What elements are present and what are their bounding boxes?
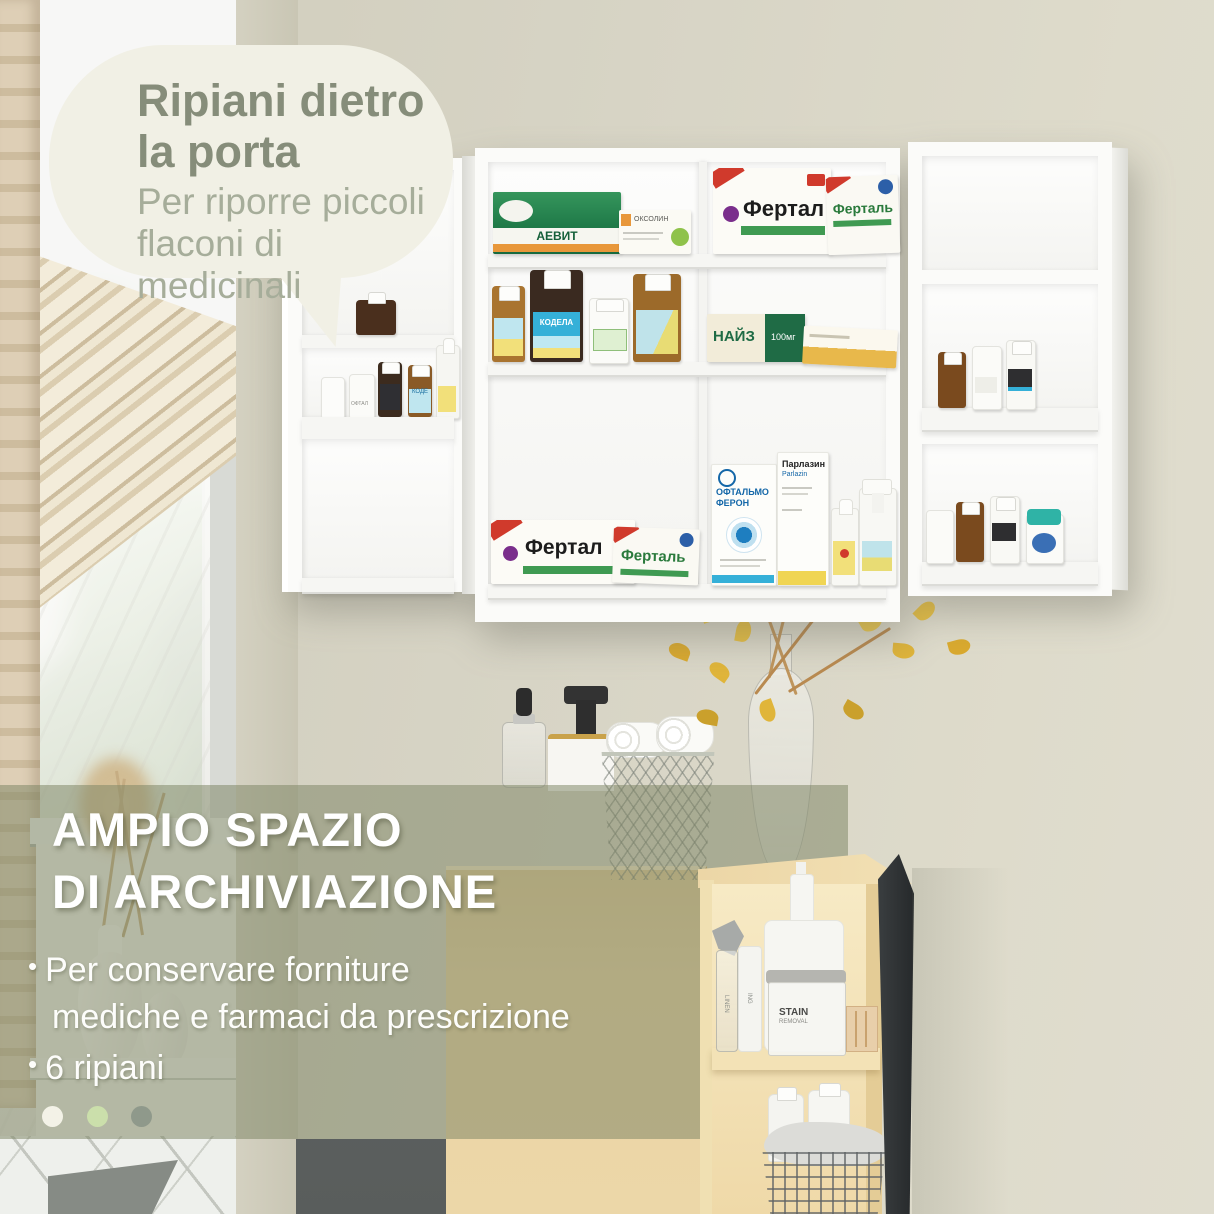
door-shelf-section — [922, 156, 1098, 270]
bullet-text: mediche e farmaci da prescrizione — [52, 998, 570, 1036]
parlazin-label-ru: Парлазин — [782, 459, 825, 469]
small-medicine-bottle — [956, 502, 984, 562]
cabinet-shelf — [488, 584, 886, 600]
yellow-box — [802, 326, 898, 369]
oftalmo-label: ОФТАЛЬМО — [716, 487, 769, 497]
fertal-label: Фертал — [525, 536, 602, 560]
nise-dose-label: 100мг — [771, 332, 796, 342]
nise-box: НАЙЗ 100мг — [707, 314, 805, 362]
cabinet-center: АЕВИТ ОКСОЛИН Фертал Ферталь — [475, 148, 900, 622]
door-shelf — [302, 417, 454, 441]
oxolin-box: ОКСОЛИН — [619, 210, 691, 254]
nasal-spray — [831, 508, 859, 586]
parlazin-label-en: Parlazin — [782, 471, 807, 478]
small-medicine-bottle — [378, 362, 402, 417]
small-medicine-bottle — [926, 510, 954, 564]
nise-label: НАЙЗ — [713, 328, 755, 345]
aevit-box: АЕВИТ — [493, 192, 621, 254]
laundry-wire-basket — [760, 1152, 888, 1214]
fertal2-box: Ферталь — [826, 175, 901, 255]
aevit-label: АЕВИТ — [493, 228, 621, 244]
door-shelf — [302, 578, 454, 594]
bottle-label: КОДЕ — [409, 389, 431, 413]
branch-leaf — [840, 699, 867, 723]
fertal2-box-bottom: Ферталь — [612, 527, 700, 586]
bullet-item: •6 ripiani — [28, 1041, 570, 1092]
door-shelf — [922, 562, 1098, 586]
white-jar — [589, 298, 629, 364]
carousel-dot-1[interactable] — [42, 1106, 63, 1127]
small-medicine-bottle — [990, 496, 1020, 564]
small-medicine-bottle — [972, 346, 1002, 410]
oftalmo-label2: ФЕРОН — [716, 498, 749, 508]
door-depth-edge — [1112, 148, 1128, 591]
product-marketing-image: ОФТАЛ КОДЕ АЕВИТ ОКСОЛИН — [0, 0, 1214, 1214]
linen-label: LINEN — [723, 995, 729, 1013]
small-medicine-bottle — [938, 352, 966, 408]
bubble-title-line1: Ripiani dietro — [137, 75, 425, 126]
fertal2-label: Ферталь — [832, 199, 893, 217]
parlazin-box: Парлазин Parlazin — [777, 452, 829, 586]
overlay-title-line1: AMPIO SPAZIO — [52, 799, 497, 861]
stain-label2: REMOVAL — [779, 1019, 808, 1025]
pump-bottle — [859, 488, 897, 586]
dropper-bottle — [502, 722, 546, 788]
bubble-body: Per riporre piccoli flaconi di medicinal… — [137, 181, 453, 307]
stain-label1: STAIN — [779, 1007, 808, 1018]
ing-spray-bottle: ING — [738, 946, 762, 1052]
bullet-text: Per conservare forniture — [45, 951, 410, 989]
syrup-bottle — [492, 286, 525, 362]
small-medicine-bottle: КОДЕ — [408, 365, 432, 417]
carousel-dot-3[interactable] — [131, 1106, 152, 1127]
syrup-bottle — [633, 274, 681, 362]
wall-shadow — [912, 868, 1042, 1214]
ointment-jar — [1026, 514, 1064, 564]
small-medicine-bottle — [321, 377, 345, 419]
speech-bubble: Ripiani dietro la porta Per riporre picc… — [49, 45, 453, 278]
fertal-label: Фертал — [743, 196, 824, 222]
door-shelf — [922, 408, 1098, 432]
small-medicine-bottle: ОФТАЛ — [349, 374, 375, 419]
fertal2-label: Ферталь — [621, 547, 686, 566]
oftalmo-feron-box: ОФТАЛЬМО ФЕРОН — [711, 464, 777, 586]
branch-leaf — [947, 637, 972, 657]
branch-leaf — [734, 619, 753, 643]
carousel-dot-2[interactable] — [87, 1106, 108, 1127]
branch-stem — [788, 627, 891, 693]
dropper-bulb — [516, 688, 532, 716]
bubble-title: Ripiani dietro la porta — [137, 75, 425, 177]
bullet-item: •Per conservare forniture — [28, 943, 570, 994]
bubble-body-line1: Per riporre piccoli — [137, 181, 453, 223]
small-medicine-bottle — [1006, 340, 1036, 410]
dark-furniture — [296, 1139, 452, 1214]
bottle-label: ОФТАЛ — [351, 401, 368, 407]
jug-pump — [790, 874, 814, 926]
cabinet-right-door[interactable] — [908, 142, 1112, 596]
bullet-dot: • — [28, 951, 37, 981]
nasal-spray-bottle — [436, 345, 460, 419]
branch-leaf — [892, 643, 915, 660]
branch-leaf — [706, 659, 733, 684]
overlay-bullets: •Per conservare forniture mediche e farm… — [28, 943, 570, 1092]
kodelak-bottle: КОДЕЛА — [530, 270, 583, 362]
stain-removal-jar: STAIN REMOVAL — [768, 982, 846, 1056]
door-hinge-gap — [462, 156, 475, 594]
door-shelf-section — [302, 439, 454, 578]
soap-pump-stem — [576, 700, 596, 738]
bullet-dot: • — [28, 1049, 37, 1079]
fertal-box: Фертал — [713, 168, 831, 254]
cabinet-shelf — [488, 254, 886, 269]
overlay-title-line2: DI ARCHIVIAZIONE — [52, 861, 497, 923]
ing-label: ING — [746, 993, 752, 1004]
bullet-text: 6 ripiani — [45, 1049, 164, 1087]
linen-spray-bottle: LINEN — [716, 950, 738, 1052]
kodelak-label: КОДЕЛА — [533, 312, 580, 358]
wooden-clips — [846, 1006, 878, 1052]
branch-leaf — [667, 640, 693, 662]
overlay-title: AMPIO SPAZIO DI ARCHIVIAZIONE — [52, 799, 497, 923]
oxolin-label: ОКСОЛИН — [634, 216, 668, 223]
bubble-title-line2: la porta — [137, 126, 425, 177]
bubble-body-line2: flaconi di medicinali — [137, 223, 453, 307]
bullet-item-wrap: mediche e farmaci da prescrizione — [28, 994, 570, 1041]
